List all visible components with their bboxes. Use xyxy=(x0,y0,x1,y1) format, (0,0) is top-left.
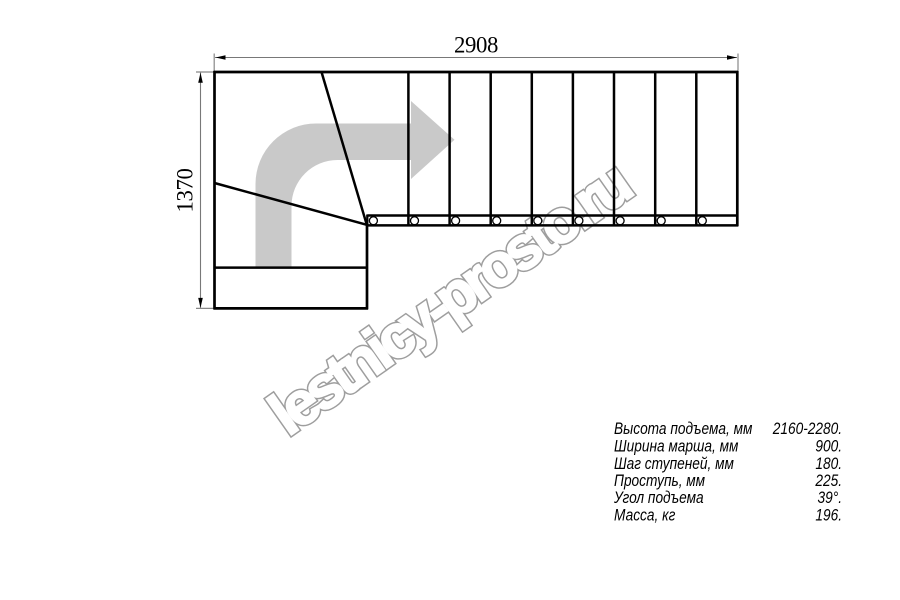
svg-text:225.: 225. xyxy=(814,472,842,490)
svg-text:2908: 2908 xyxy=(454,33,498,58)
svg-text:Проступь, мм: Проступь, мм xyxy=(614,472,706,490)
svg-text:2160-2280.: 2160-2280. xyxy=(772,420,842,438)
svg-text:196.: 196. xyxy=(815,506,842,524)
svg-text:900.: 900. xyxy=(815,437,842,455)
svg-text:Ширина марша, мм: Ширина марша, мм xyxy=(614,437,739,455)
svg-text:Шаг ступеней, мм: Шаг ступеней, мм xyxy=(614,455,734,473)
svg-text:Масса, кг: Масса, кг xyxy=(614,506,676,524)
svg-text:180.: 180. xyxy=(815,455,842,473)
svg-text:1370: 1370 xyxy=(172,169,197,213)
svg-text:39°.: 39°. xyxy=(818,489,843,507)
svg-text:Угол подъема: Угол подъема xyxy=(613,489,703,507)
svg-text:Высота подъема, мм: Высота подъема, мм xyxy=(614,420,753,438)
